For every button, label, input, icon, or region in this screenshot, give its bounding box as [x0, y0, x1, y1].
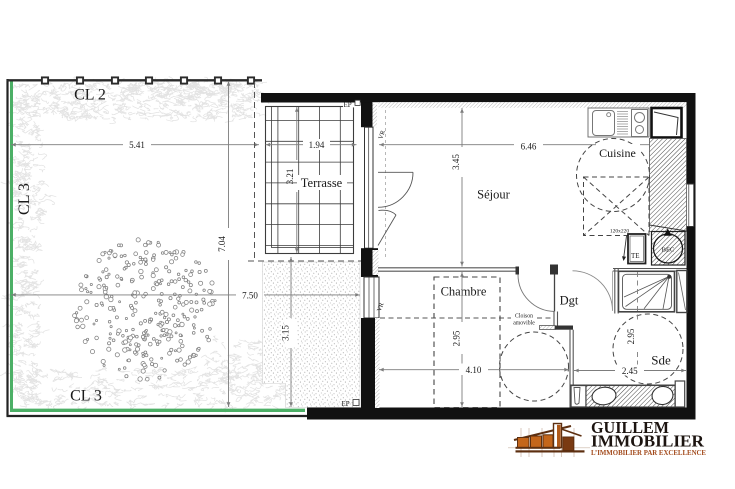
svg-text:Terrasse: Terrasse [301, 176, 343, 190]
svg-text:2.95: 2.95 [452, 330, 462, 346]
svg-text:CL 2: CL 2 [74, 87, 106, 104]
svg-text:BEC: BEC [662, 247, 675, 254]
svg-text:Chambre: Chambre [441, 285, 487, 299]
svg-text:EP: EP [344, 101, 352, 109]
svg-text:2.95: 2.95 [626, 328, 636, 344]
svg-text:Cuisine: Cuisine [599, 146, 636, 160]
svg-text:L’IMMOBILIER PAR EXCELLENCE: L’IMMOBILIER PAR EXCELLENCE [591, 449, 706, 457]
svg-text:Cloison: Cloison [515, 314, 533, 320]
svg-text:120x220: 120x220 [610, 229, 630, 235]
svg-text:Sde: Sde [651, 353, 671, 368]
svg-text:Dgt: Dgt [560, 294, 579, 308]
svg-text:TE: TE [631, 252, 640, 260]
svg-text:IMMOBILIER: IMMOBILIER [591, 432, 705, 451]
svg-text:1.94: 1.94 [309, 140, 325, 150]
svg-text:EP: EP [342, 400, 350, 408]
svg-text:3.15: 3.15 [281, 325, 291, 341]
svg-text:Séjour: Séjour [477, 188, 510, 202]
svg-text:3.21: 3.21 [285, 169, 295, 185]
svg-text:4.10: 4.10 [466, 365, 482, 375]
svg-text:5.41: 5.41 [129, 140, 145, 150]
svg-text:CL 3: CL 3 [70, 388, 102, 405]
svg-text:2.45: 2.45 [622, 366, 638, 376]
svg-text:7.50: 7.50 [242, 290, 258, 300]
svg-text:CL 3: CL 3 [16, 183, 33, 215]
svg-text:3.45: 3.45 [451, 154, 461, 170]
svg-text:amovible: amovible [513, 321, 535, 327]
svg-text:7.04: 7.04 [217, 236, 227, 252]
svg-text:6.46: 6.46 [521, 141, 537, 151]
